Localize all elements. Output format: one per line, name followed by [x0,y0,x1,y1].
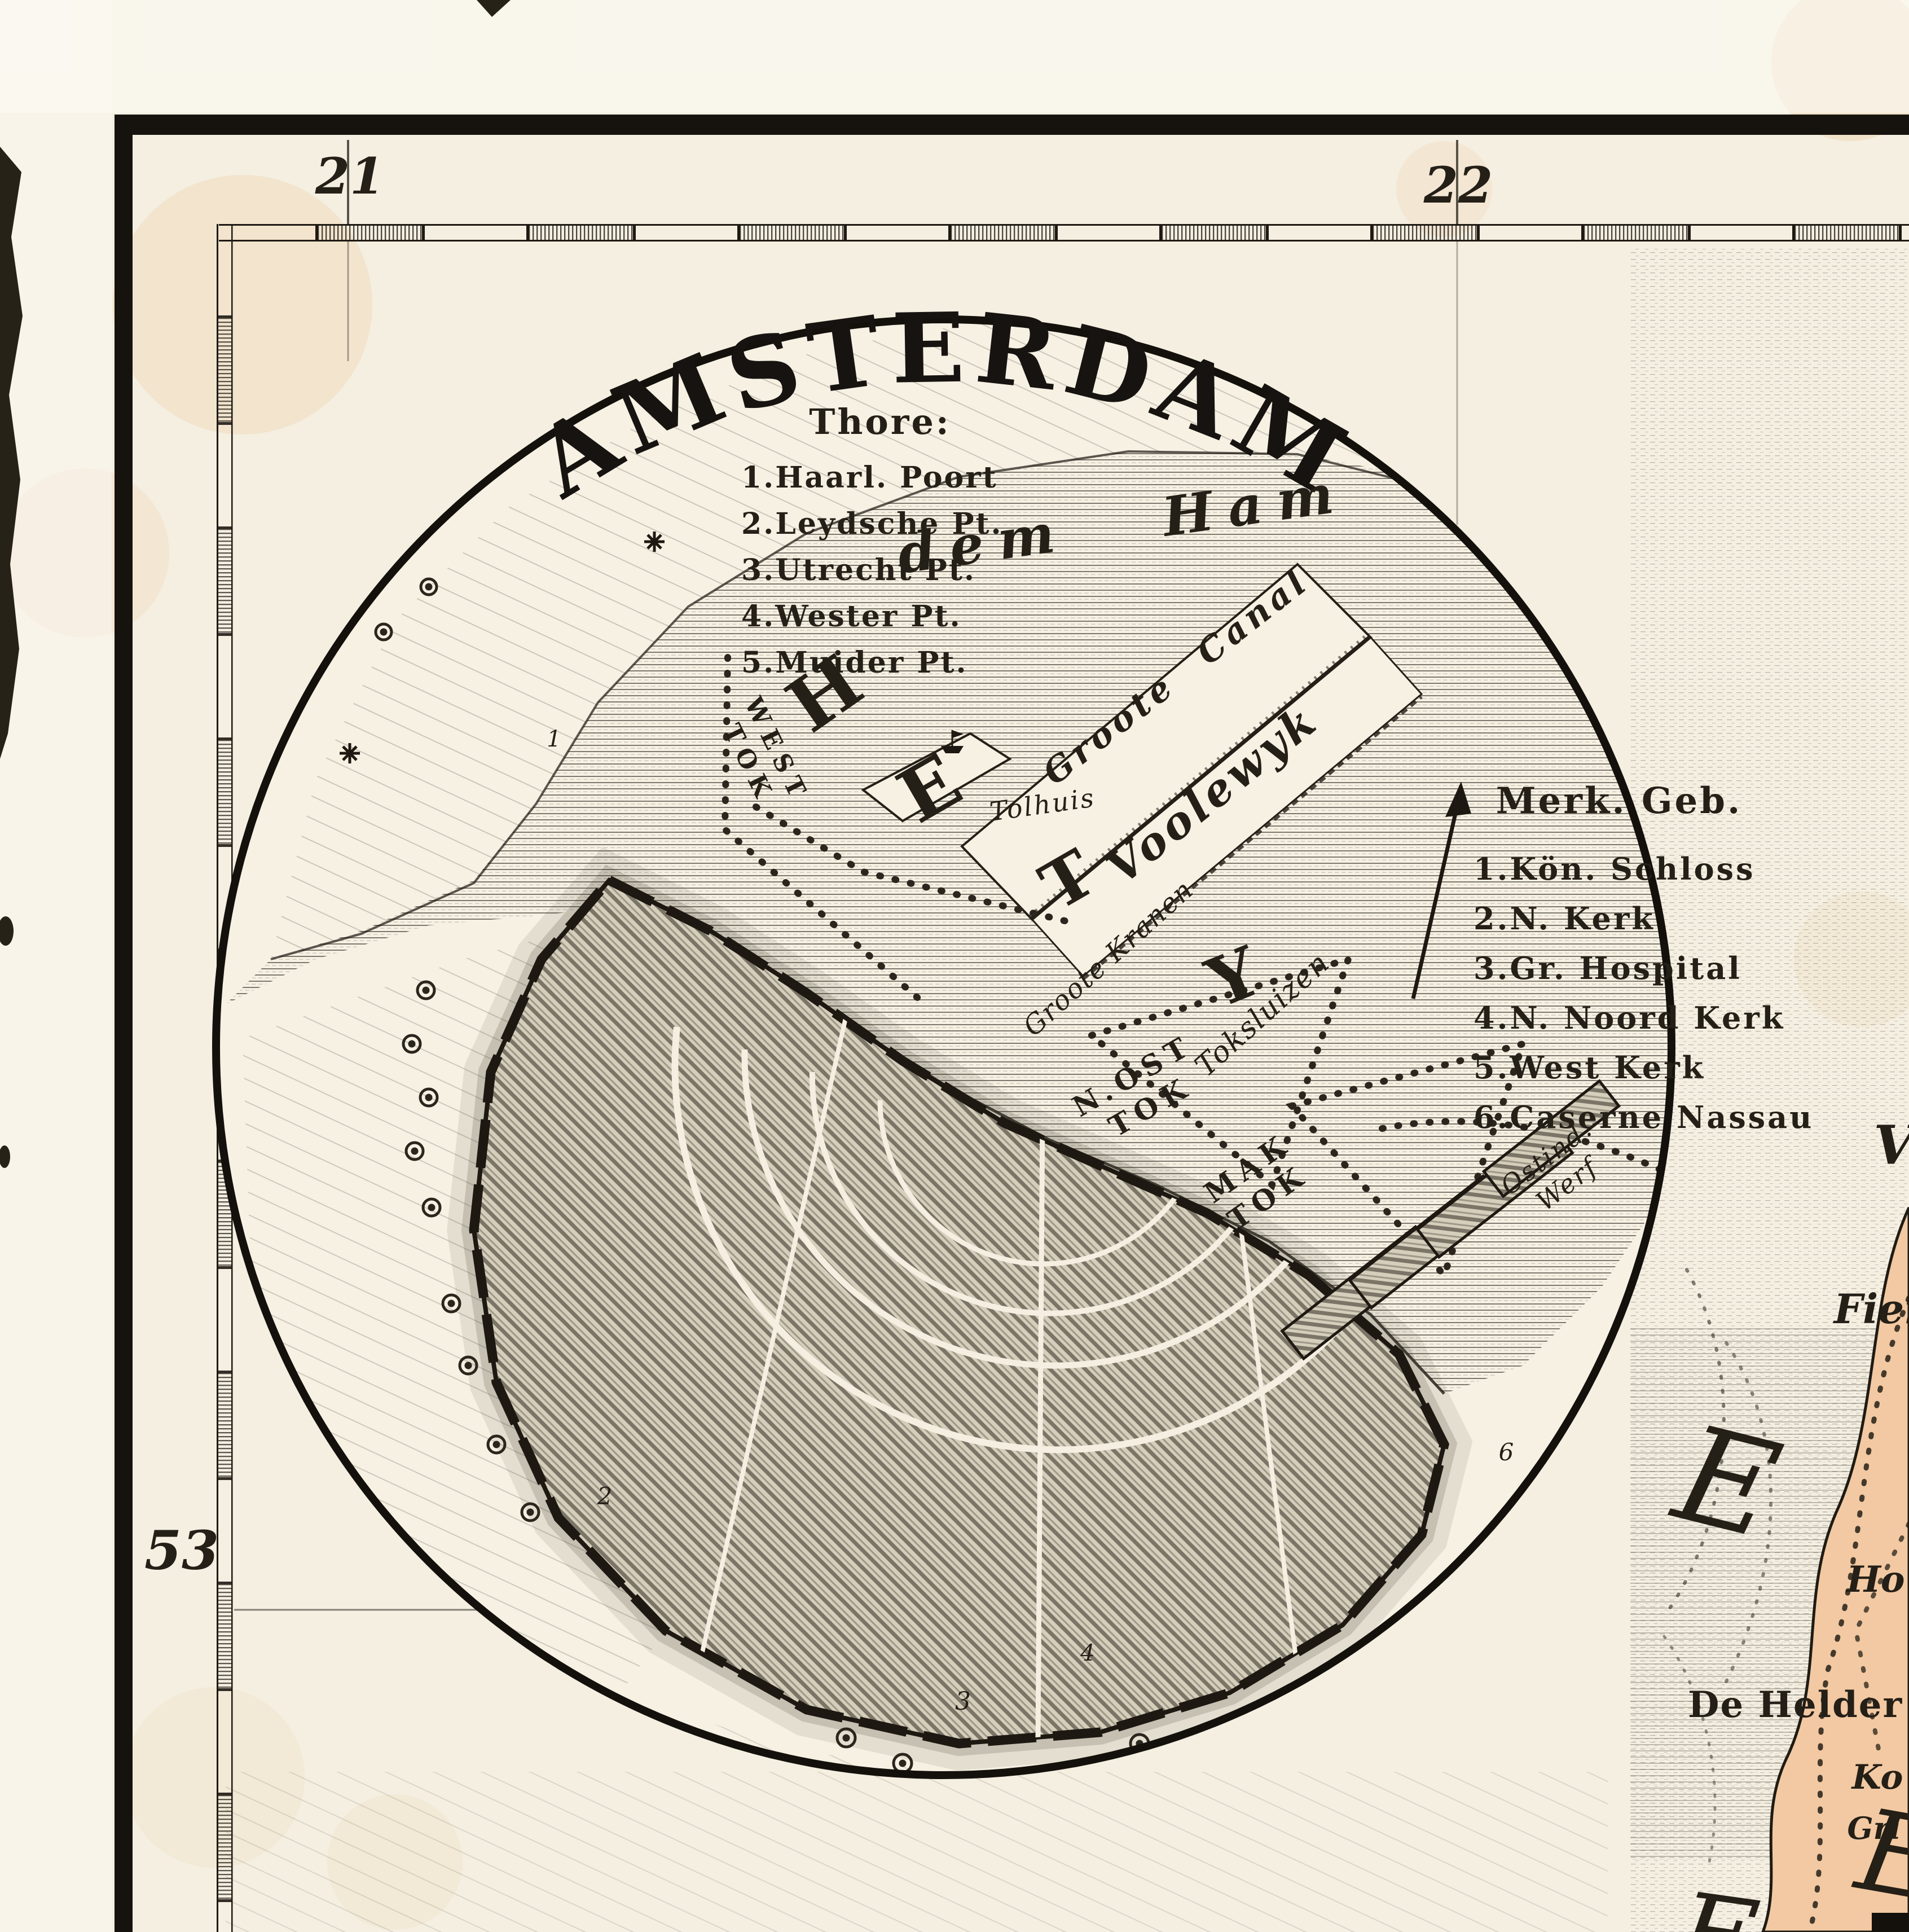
buildings-list: 1.Kön. Schloss 2.N. Kerk 3.Gr. Hospital … [1473,844,1814,1142]
gates-heading: Thore: [809,405,951,440]
buildings-item: 4.N. Noord Kerk [1473,993,1814,1043]
marker-3: 3 [955,1689,971,1714]
buildings-item: 2.N. Kerk [1473,894,1814,943]
fragment-ho: Ho [1846,1562,1904,1598]
buildings-item: 6.Caserne Nassau [1473,1092,1814,1142]
gates-item: 4.Wester Pt. [741,594,1003,640]
latitude-label-53: 53 [144,1524,219,1578]
buildings-item: 1.Kön. Schloss [1473,844,1814,894]
place-label-de-helder: De Helder [1688,1687,1903,1723]
fragment-big-e-bottom: E [1672,1878,1764,1932]
marker-1: 1 [547,728,561,750]
gates-item: 1.Haarl. Poort [741,455,1003,501]
fragment-fier: Fier [1834,1289,1909,1329]
buildings-heading: Merk. Geb. [1496,783,1743,819]
fragment-v: V [1873,1119,1909,1173]
buildings-item: 5.West Kerk [1473,1043,1814,1092]
longitude-label-22: 22 [1424,160,1493,210]
buildings-item: 3.Gr. Hospital [1473,943,1814,993]
scanned-map-page: AMSTERDAM 21 22 53 Thore: 1.Haarl. Poort… [0,0,1909,1932]
marker-6: 6 [1499,1441,1514,1464]
longitude-label-21: 21 [315,151,384,201]
marker-4: 4 [1080,1642,1094,1665]
marker-2: 2 [597,1485,613,1508]
polder-texture-south [226,1772,1608,1932]
